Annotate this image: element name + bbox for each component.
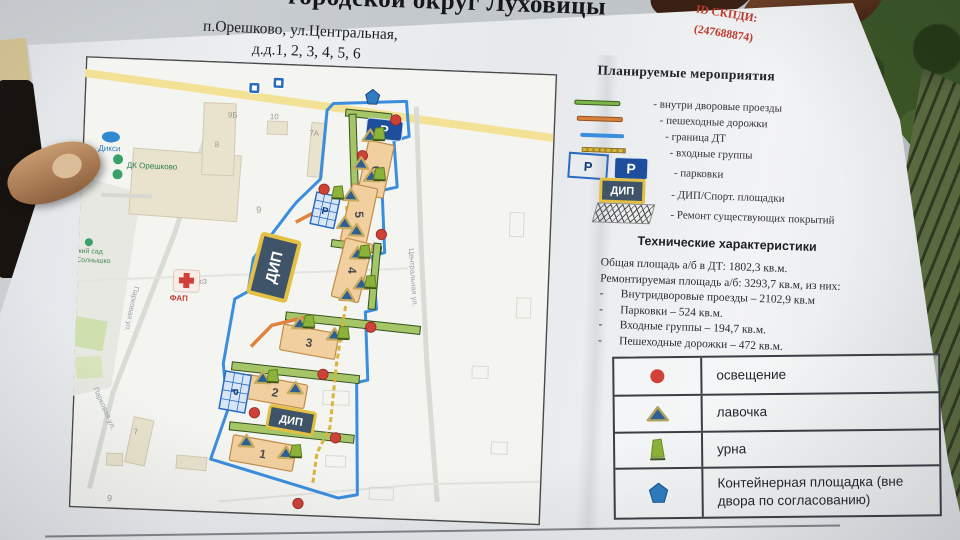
table-row: освещение bbox=[614, 355, 938, 396]
table-label: урна bbox=[703, 430, 925, 466]
poi-kindergarten: кий сад bbox=[78, 247, 103, 256]
legend-parking-grid-icon: Р bbox=[567, 152, 609, 181]
legend-label: - входные группы bbox=[669, 147, 752, 162]
context-number: 9Б bbox=[228, 110, 238, 119]
legend-crosshatch-icon bbox=[592, 202, 656, 224]
svg-text:Р: Р bbox=[228, 389, 239, 396]
legend-path-line bbox=[577, 116, 623, 123]
legend-dip-icon: ДИП bbox=[599, 177, 646, 204]
building-number: 4 bbox=[345, 267, 359, 274]
poi-kindergarten: Солнышко bbox=[76, 257, 111, 265]
table-row: лавочка bbox=[615, 393, 939, 433]
table-label: лавочка bbox=[703, 393, 925, 430]
table-label: Контейнерная площадка (вне двора по согл… bbox=[703, 466, 925, 516]
urn-icon bbox=[648, 438, 668, 462]
legend-label: - граница ДТ bbox=[665, 131, 726, 145]
context-number: 7А bbox=[309, 129, 320, 138]
table-row: Контейнерная площадка (вне двора по согл… bbox=[615, 466, 939, 517]
poi-diksi: Дикси bbox=[98, 144, 120, 154]
page-title: городской округ Луховицы bbox=[288, 0, 607, 22]
tech-lines: Общая площадь а/б в ДТ: 1802,3 кв.м. Рем… bbox=[598, 256, 842, 357]
building-number: 5 bbox=[352, 211, 366, 218]
site-plan-map: 8 9Б 10 7А 9 7 9 Дикси ДК Орешково bbox=[69, 56, 558, 526]
bench-icon bbox=[646, 405, 670, 423]
legend-label: - пешеходные дорожки bbox=[660, 115, 768, 131]
legend-driveway-line bbox=[574, 100, 620, 107]
context-number: 10 bbox=[270, 112, 280, 121]
parking-grid: Р bbox=[219, 371, 251, 413]
legend-parking-sign-icon: Р bbox=[614, 157, 649, 180]
lighting-icon bbox=[650, 369, 664, 383]
poi-dk: ДК Орешково bbox=[127, 161, 178, 172]
poi-fap: ФАП bbox=[170, 293, 189, 303]
legend-label: - парковки bbox=[674, 167, 724, 181]
container-site-icon bbox=[647, 482, 669, 504]
context-number: 9 bbox=[256, 205, 261, 215]
table-label: освещение bbox=[702, 355, 924, 393]
legend-boundary-line bbox=[580, 133, 624, 139]
right-column: Планируемые мероприятия - внутри дворовы… bbox=[549, 55, 959, 374]
legend-label: - ДИП/Спорт. площадки bbox=[671, 189, 785, 205]
context-number: 9 bbox=[107, 493, 112, 503]
legend-label: - внутри дворовые проезды bbox=[653, 98, 782, 114]
photo-scene: городской округ Луховицы п.Орешково, ул.… bbox=[0, 0, 960, 540]
table-row: урна bbox=[615, 430, 939, 469]
legend-label: - Ремонт существующих покрытий bbox=[670, 209, 834, 227]
planned-heading: Планируемые мероприятия bbox=[597, 62, 775, 84]
tech-heading: Технические характеристики bbox=[637, 234, 817, 254]
fap-code: с3 bbox=[199, 279, 207, 286]
symbols-table: освещение лавочка урна bbox=[612, 353, 942, 519]
